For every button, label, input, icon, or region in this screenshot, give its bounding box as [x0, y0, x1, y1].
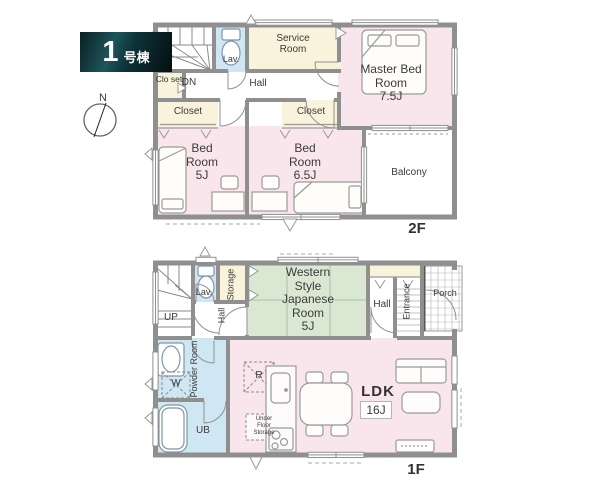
stairs-up-label: UP: [159, 312, 183, 323]
hall-label-2f: Hall: [243, 78, 273, 89]
unit-badge: 1 号棟: [80, 32, 172, 72]
lav-label-1f: Lav.: [189, 287, 219, 297]
room-name: Master Bed Room: [357, 63, 425, 90]
bedroom65-label: Bed Room 6.5J: [282, 142, 328, 183]
porch-label: Porch: [427, 288, 463, 298]
closet-left-label: Closet: [166, 106, 210, 117]
service-room-label: Service Room: [266, 33, 320, 56]
sofa-icon: [396, 359, 446, 383]
unit-number: 1: [102, 38, 118, 67]
floor2-label: 2F: [402, 221, 432, 238]
room-size: 5J: [271, 320, 345, 334]
underfloor-storage-label: Under Floor Storage: [251, 416, 277, 436]
floorplan-page: 1 号棟 N DN Lav. Service Room Clo set Hall…: [0, 0, 600, 491]
powder-room-label: Powder Room: [189, 339, 215, 399]
unit-suffix: 号棟: [124, 38, 150, 66]
coffee-table-icon: [402, 392, 440, 413]
fridge-label: R: [249, 370, 269, 381]
room-name: Bed Room: [179, 142, 225, 169]
tv-board-icon: [396, 440, 434, 452]
room-size: 6.5J: [282, 169, 328, 183]
compass-icon: [84, 103, 116, 137]
porch-tiles: [424, 266, 462, 331]
floorplan-drawing: [0, 0, 600, 491]
sink-icon: [158, 343, 184, 376]
entrance-label: Entrance: [402, 270, 415, 334]
western-room-label: Western Style Japanese Room 5J: [271, 266, 345, 334]
ldk-label: LDK: [356, 384, 400, 401]
hall-inner-label: Hall: [217, 299, 230, 333]
bedroom5-label: Bed Room 5J: [179, 142, 225, 183]
washer-label: W: [166, 378, 186, 389]
room-size: 7.5J: [357, 90, 425, 104]
balcony-label: Balcony: [383, 167, 435, 178]
ldk-size-label: 16J: [360, 401, 392, 419]
closet-right-label: Closet: [289, 106, 333, 117]
bathtub-icon: [159, 405, 187, 452]
unit-bath-label: UB: [188, 425, 218, 436]
kitchen-counter-icon: [266, 366, 296, 452]
master-bedroom-label: Master Bed Room 7.5J: [357, 63, 425, 104]
lav-label-2f: Lav.: [215, 54, 247, 64]
compass-north-label: N: [95, 92, 111, 104]
room-name: Bed Room: [282, 142, 328, 169]
closet-small-label: Clo set: [155, 75, 183, 85]
room-size: 5J: [179, 169, 225, 183]
room-name: Western Style Japanese Room: [271, 266, 345, 320]
hall-label-1f: Hall: [368, 299, 396, 310]
floor1-label: 1F: [401, 462, 431, 479]
